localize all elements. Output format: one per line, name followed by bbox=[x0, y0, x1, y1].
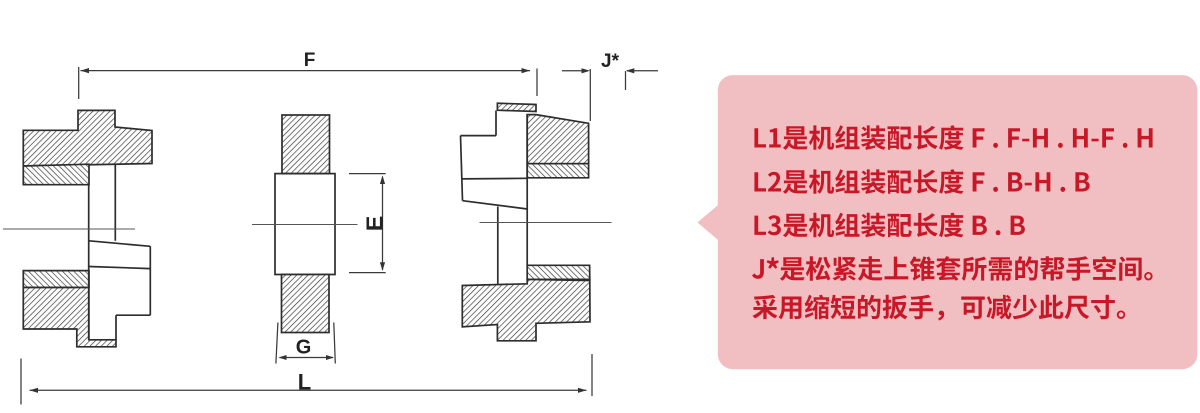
svg-text:F: F bbox=[304, 50, 316, 71]
svg-text:G: G bbox=[296, 337, 312, 359]
svg-text:J*: J* bbox=[601, 51, 620, 72]
svg-text:E: E bbox=[361, 216, 387, 231]
svg-text:L: L bbox=[298, 369, 311, 394]
